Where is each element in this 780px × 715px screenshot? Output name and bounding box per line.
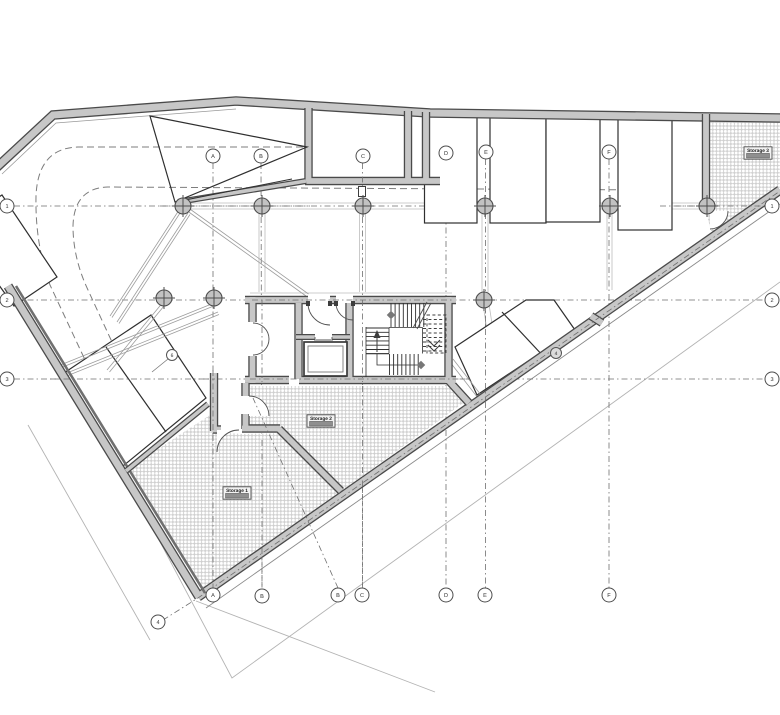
svg-text:Storage 1: Storage 1: [226, 488, 248, 494]
svg-text:E: E: [483, 593, 487, 599]
svg-text:A: A: [211, 593, 215, 599]
svg-text:C: C: [360, 593, 364, 599]
svg-text:D: D: [444, 151, 448, 157]
svg-text:B: B: [336, 593, 340, 599]
svg-text:2: 2: [5, 298, 8, 304]
svg-text:6: 6: [171, 353, 174, 359]
svg-text:4: 4: [156, 620, 159, 626]
svg-text:Storage 2: Storage 2: [310, 416, 332, 422]
svg-text:1: 1: [770, 204, 773, 210]
svg-text:3: 3: [5, 377, 8, 383]
svg-text:3: 3: [770, 377, 773, 383]
svg-text:A: A: [211, 154, 215, 160]
svg-text:1: 1: [5, 204, 8, 210]
svg-text:F: F: [607, 150, 611, 156]
svg-text:B: B: [260, 594, 264, 600]
svg-text:4: 4: [555, 351, 558, 357]
svg-text:F: F: [607, 593, 611, 599]
svg-text:2: 2: [770, 298, 773, 304]
svg-text:D: D: [444, 593, 448, 599]
svg-text:E: E: [484, 150, 488, 156]
svg-text:C: C: [361, 154, 365, 160]
svg-text:B: B: [259, 154, 263, 160]
svg-text:Storage 3: Storage 3: [747, 148, 769, 154]
